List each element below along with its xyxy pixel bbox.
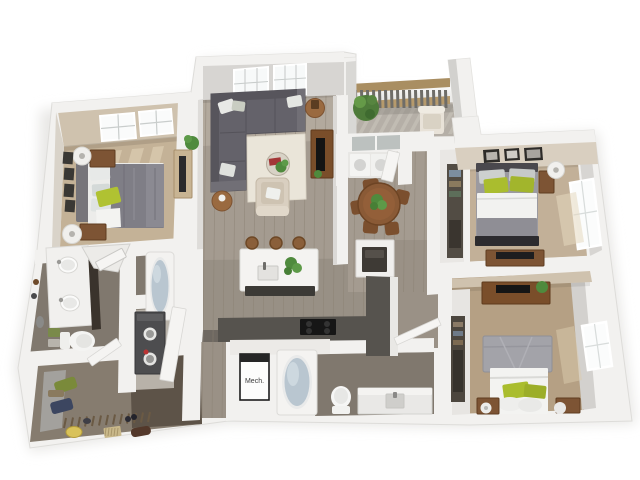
svg-text:Mech.: Mech. xyxy=(245,378,264,385)
